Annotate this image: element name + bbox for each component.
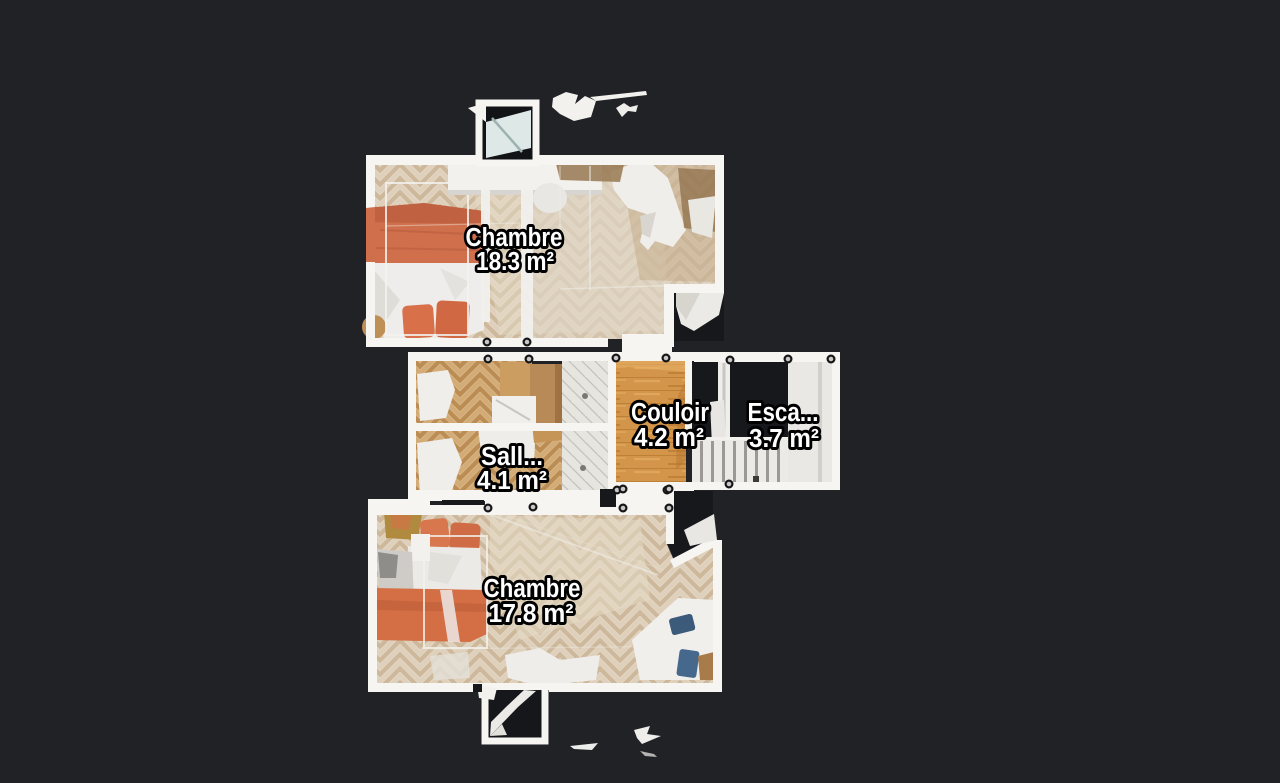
svg-text:Chambre: Chambre — [484, 575, 581, 603]
svg-text:4.2 m²: 4.2 m² — [634, 424, 704, 452]
svg-text:Esca...: Esca... — [748, 399, 819, 427]
svg-text:18.3 m²: 18.3 m² — [476, 248, 554, 276]
svg-text:4.1 m²: 4.1 m² — [477, 467, 547, 495]
svg-text:Couloir: Couloir — [631, 399, 709, 427]
svg-text:3.7 m²: 3.7 m² — [749, 425, 819, 453]
svg-text:17.8 m²: 17.8 m² — [489, 600, 574, 628]
